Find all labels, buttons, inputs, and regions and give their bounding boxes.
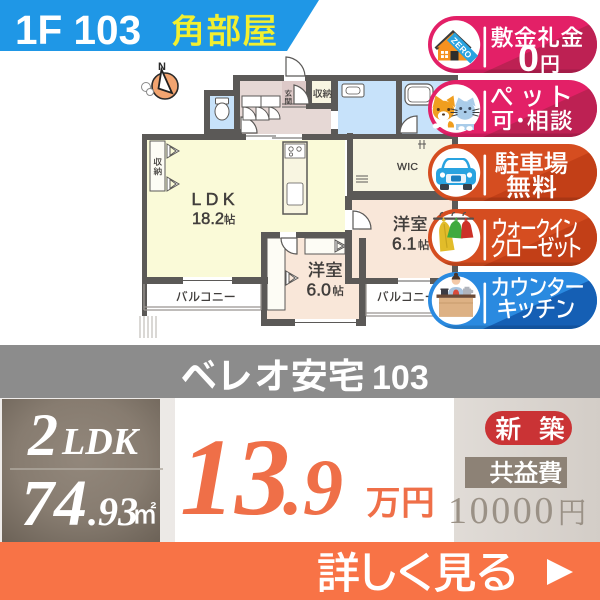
svg-text:6.1: 6.1 — [392, 234, 416, 254]
svg-text:WIC: WIC — [397, 161, 418, 173]
svg-text:LDK: LDK — [192, 189, 240, 209]
svg-text:6.0: 6.0 — [307, 280, 332, 300]
svg-text:LDK: LDK — [61, 421, 141, 463]
svg-text:.93: .93 — [88, 489, 138, 534]
svg-text:10000: 10000 — [448, 490, 556, 532]
svg-text:18.2: 18.2 — [192, 210, 224, 228]
svg-text:0: 0 — [518, 38, 539, 79]
svg-text:2: 2 — [27, 402, 58, 468]
svg-text:13: 13 — [180, 416, 290, 538]
svg-text:N: N — [158, 61, 166, 73]
svg-text:103: 103 — [372, 359, 429, 397]
svg-text:74: 74 — [21, 467, 87, 540]
svg-text:1F 103: 1F 103 — [15, 7, 141, 53]
svg-text:.9: .9 — [283, 444, 343, 532]
